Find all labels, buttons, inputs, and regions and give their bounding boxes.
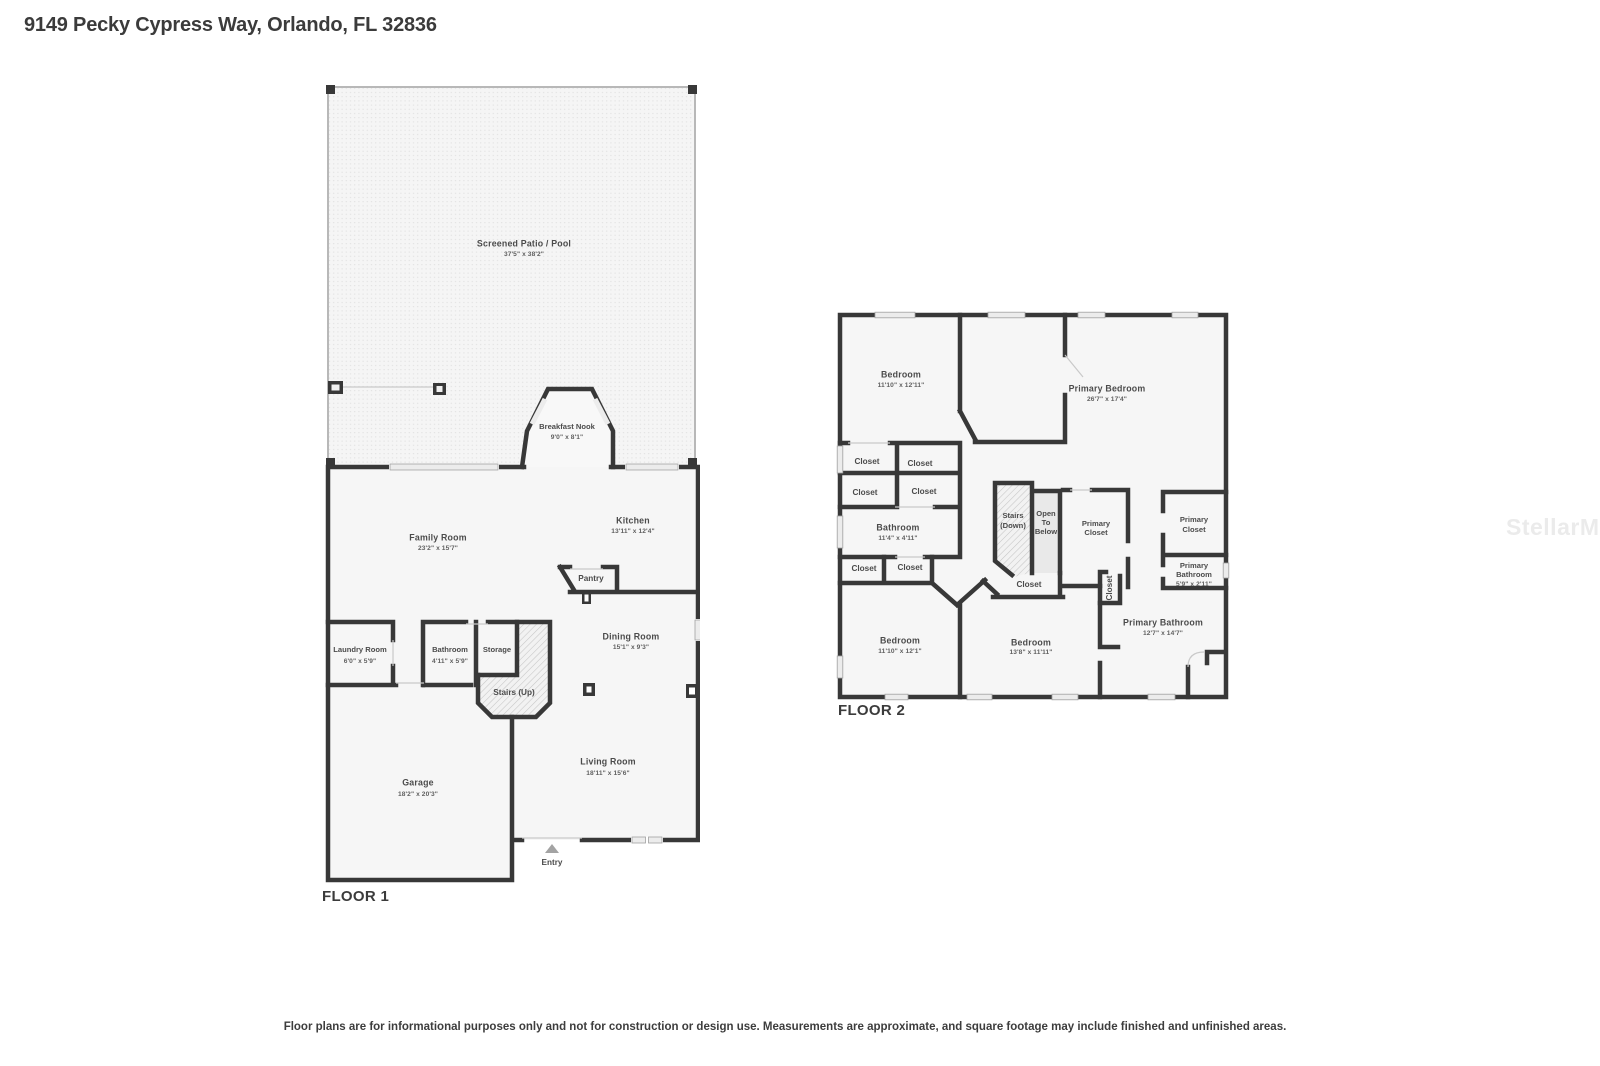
entry-arrow-icon (545, 844, 559, 853)
svg-text:13'11" x 12'4": 13'11" x 12'4" (611, 528, 654, 535)
floor2-label: FLOOR 2 (838, 702, 905, 719)
svg-text:Closet: Closet (1016, 580, 1041, 589)
svg-text:Below: Below (1035, 527, 1057, 536)
room-label-kitchen: Kitchen 13'11" x 12'4" (611, 515, 654, 534)
svg-text:26'7" x 17'4": 26'7" x 17'4" (1087, 396, 1127, 403)
svg-text:Primary Bedroom: Primary Bedroom (1069, 383, 1146, 393)
svg-text:Bedroom: Bedroom (880, 635, 920, 645)
svg-text:12'7" x 14'7": 12'7" x 14'7" (1143, 630, 1183, 637)
svg-text:9'0" x 8'1": 9'0" x 8'1" (551, 434, 584, 441)
room-label-closet-hall: Closet (1016, 580, 1041, 589)
floor2-plan: Bedroom 11'10" x 12'11" Primary Bedroom … (836, 311, 1230, 703)
svg-text:Storage: Storage (483, 645, 511, 654)
page-title: 9149 Pecky Cypress Way, Orlando, FL 3283… (24, 14, 437, 37)
room-label-pantry: Pantry (578, 574, 604, 583)
room-label-stairs-up: Stairs (Up) (493, 688, 535, 697)
svg-text:Entry: Entry (542, 858, 563, 867)
svg-text:Pantry: Pantry (578, 574, 604, 583)
svg-text:Bathroom: Bathroom (876, 522, 919, 532)
svg-text:Open: Open (1036, 509, 1056, 518)
svg-text:Primary: Primary (1180, 515, 1209, 524)
svg-text:Closet: Closet (1105, 575, 1114, 600)
room-label-storage: Storage (483, 645, 511, 654)
floor1-label: FLOOR 1 (322, 888, 389, 905)
room-label-primary-closet-center: Primary Closet (1082, 519, 1111, 537)
room-label-primary-bathroom-small: Primary Bathroom 5'9" x 2'11" (1176, 561, 1212, 588)
svg-text:Closet: Closet (1182, 525, 1206, 534)
disclaimer-text: Floor plans are for informational purpos… (0, 1021, 1570, 1033)
svg-text:4'11" x 5'9": 4'11" x 5'9" (432, 658, 468, 665)
svg-text:Bathroom: Bathroom (432, 645, 468, 654)
room-label-stairs-down: Stairs (Down) (1000, 511, 1026, 530)
svg-text:Primary Bathroom: Primary Bathroom (1123, 617, 1203, 627)
room-label-bedroom-top-left: Bedroom 11'10" x 12'11" (878, 369, 925, 388)
room-label-bathroom2: Bathroom 11'4" x 4'11" (876, 522, 919, 541)
svg-text:Closet: Closet (852, 488, 877, 497)
svg-text:Stairs: Stairs (1002, 511, 1023, 520)
svg-text:Primary: Primary (1082, 519, 1111, 528)
svg-text:23'2" x 15'7": 23'2" x 15'7" (418, 545, 458, 552)
room-label-closet-vertical: Closet (1105, 575, 1114, 600)
svg-text:Primary: Primary (1180, 561, 1209, 570)
svg-text:6'0" x 5'9": 6'0" x 5'9" (344, 658, 377, 665)
svg-text:Breakfast Nook: Breakfast Nook (539, 422, 595, 431)
svg-text:5'9" x 2'11": 5'9" x 2'11" (1176, 581, 1212, 588)
svg-text:Closet: Closet (851, 564, 876, 573)
svg-text:Closet: Closet (911, 487, 936, 496)
svg-text:Screened Patio / Pool: Screened Patio / Pool (477, 238, 571, 248)
svg-text:Garage: Garage (402, 777, 434, 787)
room-label-primary-closet-right: Primary Closet (1180, 515, 1209, 534)
svg-text:Family Room: Family Room (409, 532, 466, 542)
svg-text:15'1" x 9'3": 15'1" x 9'3" (613, 644, 649, 651)
svg-text:Closet: Closet (1084, 528, 1108, 537)
svg-text:37'5" x 38'2": 37'5" x 38'2" (504, 251, 544, 258)
svg-text:Kitchen: Kitchen (616, 515, 650, 525)
floor1-plan: Screened Patio / Pool 37'5" x 38'2" Brea… (320, 83, 700, 888)
svg-text:11'4" x 4'11": 11'4" x 4'11" (878, 535, 917, 542)
svg-text:Bathroom: Bathroom (1176, 570, 1212, 579)
svg-text:Bedroom: Bedroom (1011, 637, 1051, 647)
svg-text:18'11" x 15'6": 18'11" x 15'6" (586, 770, 629, 777)
svg-text:Living Room: Living Room (580, 756, 635, 766)
svg-text:Bedroom: Bedroom (881, 369, 921, 379)
svg-text:18'2" x 20'3": 18'2" x 20'3" (398, 791, 438, 798)
svg-text:13'8" x 11'11": 13'8" x 11'11" (1009, 649, 1052, 656)
svg-text:Laundry Room: Laundry Room (333, 645, 387, 654)
room-label-bedroom-bottom-left: Bedroom 11'10" x 12'1" (878, 635, 921, 654)
room-label-bedroom-bottom-center: Bedroom 13'8" x 11'11" (1009, 637, 1052, 655)
stairs-down-hatch (997, 483, 1030, 577)
svg-text:To: To (1042, 518, 1051, 527)
svg-text:Closet: Closet (907, 459, 932, 468)
entry-marker: Entry (542, 844, 563, 867)
svg-text:11'10" x 12'11": 11'10" x 12'11" (878, 382, 925, 389)
svg-text:Stairs (Up): Stairs (Up) (493, 688, 535, 697)
svg-text:(Down): (Down) (1000, 521, 1026, 530)
svg-text:Dining Room: Dining Room (603, 631, 660, 641)
screened-patio-area (328, 87, 695, 467)
svg-text:11'10" x 12'1": 11'10" x 12'1" (878, 648, 921, 655)
svg-text:Closet: Closet (897, 563, 922, 572)
stellar-mls-watermark: StellarMLS (1506, 514, 1600, 541)
svg-text:Closet: Closet (854, 457, 879, 466)
